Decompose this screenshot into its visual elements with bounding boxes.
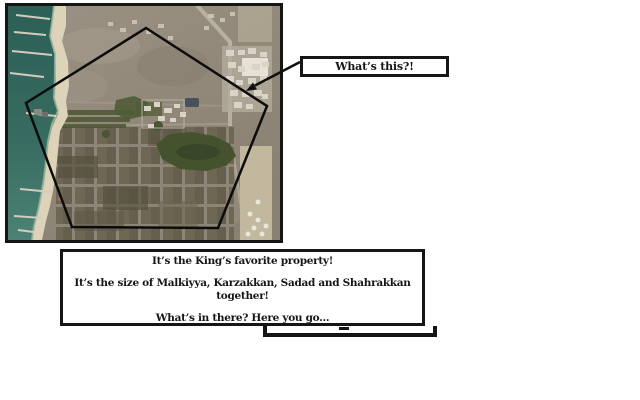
page: What’s this?! It’s the King’s favorite p…	[0, 0, 640, 400]
info-line-1: It’s the King’s favorite property!	[63, 255, 422, 268]
partial-box-right-edge	[433, 326, 437, 337]
partial-box-text-fragment	[339, 327, 349, 330]
info-box: It’s the King’s favorite property! It’s …	[60, 249, 425, 326]
callout-box: What’s this?!	[300, 56, 449, 77]
info-line-2: It’s the size of Malkiyya, Karzakkan, Sa…	[63, 277, 422, 303]
satellite-map	[5, 3, 283, 243]
partial-box-bottom-border	[263, 333, 437, 337]
partial-box-left-edge	[263, 326, 267, 337]
satellite-map-image	[8, 6, 280, 240]
info-line-3: What’s in there? Here you go...	[63, 312, 422, 325]
callout-text: What’s this?!	[335, 60, 414, 73]
arrowhead-icon	[246, 83, 257, 92]
callout-arrow	[240, 52, 310, 98]
